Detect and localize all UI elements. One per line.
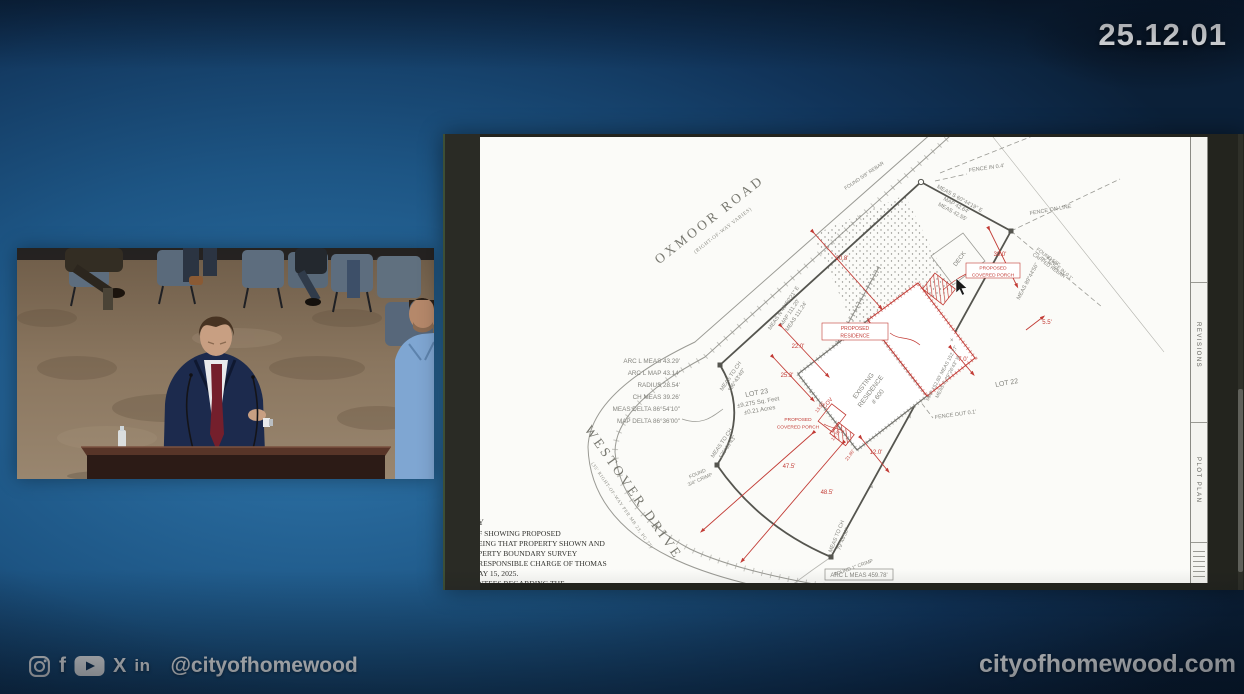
adjacent-lot-label: LOT 22 (995, 378, 1019, 389)
svg-text:PROPOSED: PROPOSED (784, 417, 812, 423)
svg-text:CH MEAS 39.26': CH MEAS 39.26' (633, 394, 680, 401)
svg-text:DECK: DECK (953, 251, 968, 268)
chord-label-2: MEAS TO CH 126°09'43" (710, 428, 740, 464)
svg-text:FENCE OUT 0.1': FENCE OUT 0.1' (934, 409, 976, 421)
svg-text:Y: Y (480, 518, 484, 527)
date-overlay: 25.12.01 (1098, 17, 1227, 53)
slide-left-margin (445, 134, 480, 590)
svg-text:22.0': 22.0' (792, 344, 805, 350)
svg-text:×: × (908, 415, 912, 421)
plot-plan-drawing: OXMOOR ROAD (RIGHT-OF-WAY VARIES) WESTOV… (480, 137, 1190, 583)
deck-label: DECK (953, 251, 968, 268)
svg-text:RADIUS 28.54': RADIUS 28.54' (637, 382, 680, 389)
svg-text:21.80': 21.80' (844, 449, 855, 462)
svg-text:NTEES REGARDING THE: NTEES REGARDING THE (480, 579, 565, 583)
revision-rows (1193, 547, 1205, 577)
svg-text:39.0': 39.0' (994, 252, 1007, 258)
svg-text:PROPOSED: PROPOSED (841, 326, 870, 332)
svg-text:RESIDENCE: RESIDENCE (840, 334, 870, 340)
scrollbar[interactable] (1238, 134, 1243, 590)
svg-text:12.0': 12.0' (870, 450, 883, 456)
plot-plan-label: PLOT PLAN (1195, 457, 1201, 503)
monument-label-rebar: FOUND 5/8" REBAR (843, 160, 885, 191)
title-block-divider (1191, 422, 1207, 423)
scrollbar-thumb[interactable] (1238, 389, 1243, 571)
lot-label: LOT 23 ±9,275 Sq. Feet ±0.21 Acres (735, 386, 782, 417)
youtube-icon[interactable] (74, 655, 105, 677)
title-block-divider (1191, 542, 1207, 543)
survey-sheet: OXMOOR ROAD (RIGHT-OF-WAY VARIES) WESTOV… (480, 137, 1190, 583)
svg-text:RESPONSIBLE CHARGE OF THOMAS: RESPONSIBLE CHARGE OF THOMAS (480, 559, 607, 568)
shared-screen-panel[interactable]: OXMOOR ROAD (RIGHT-OF-WAY VARIES) WESTOV… (443, 134, 1244, 590)
website-url: cityofhomewood.com (979, 650, 1236, 679)
svg-text:5.5': 5.5' (1042, 320, 1052, 326)
svg-text:PERTY BOUNDARY SURVEY: PERTY BOUNDARY SURVEY (480, 549, 578, 558)
x-icon[interactable]: X (113, 655, 126, 677)
svg-text:×: × (950, 338, 954, 344)
svg-text:×: × (870, 485, 874, 491)
revisions-label: REVISIONS (1195, 322, 1201, 368)
svg-text:FENCE ON LINE: FENCE ON LINE (1029, 204, 1072, 217)
monument-label-crimp34: FOUND 3/4" CRIMP (684, 466, 714, 488)
instagram-icon[interactable] (28, 655, 51, 678)
linkedin-icon[interactable]: in (134, 655, 150, 677)
svg-text:25.3': 25.3' (781, 373, 794, 379)
tie (210, 364, 224, 451)
water-bottle (118, 430, 126, 448)
svg-text:EING THAT PROPERTY SHOWN AND: EING THAT PROPERTY SHOWN AND (480, 539, 605, 548)
svg-text:AY 15, 2025.: AY 15, 2025. (480, 569, 518, 578)
svg-text:OXMOOR ROAD: OXMOOR ROAD (652, 172, 767, 267)
road-label-oxmoor: OXMOOR ROAD (RIGHT-OF-WAY VARIES) (652, 172, 775, 277)
chord-label-1: MEAS TO CH 136°43'49" (719, 361, 749, 397)
svg-text:47.5': 47.5' (783, 464, 796, 470)
mouse-cursor (956, 278, 967, 295)
svg-text:ARC L MAP 43.14': ARC L MAP 43.14' (628, 370, 680, 377)
svg-text:LOT 22: LOT 22 (995, 378, 1019, 389)
certification-text: Y F SHOWING PROPOSED EING THAT PROPERTY … (480, 518, 607, 583)
facebook-icon[interactable]: f (59, 655, 66, 677)
social-handle: @cityofhomewood (170, 654, 357, 678)
social-bar: f X in @cityofhomewood (28, 654, 358, 678)
svg-text:MEAS DELTA 86°54'10": MEAS DELTA 86°54'10" (613, 405, 680, 413)
svg-text:LOT 23: LOT 23 (745, 388, 769, 399)
svg-text:COVERED PORCH: COVERED PORCH (972, 273, 1015, 279)
meeting-room-scene (17, 248, 434, 479)
sheet-title-block: REVISIONS PLOT PLAN (1190, 137, 1208, 583)
svg-text:PROPOSED: PROPOSED (979, 266, 1007, 272)
svg-text:ARC L MEAS 43.29': ARC L MEAS 43.29' (623, 358, 680, 365)
svg-text:7.0': 7.0' (958, 357, 968, 363)
svg-text:MAP DELTA 86°36'00": MAP DELTA 86°36'00" (617, 417, 680, 425)
svg-text:FENCE IN 0.4': FENCE IN 0.4' (968, 163, 1004, 174)
svg-text:F SHOWING PROPOSED: F SHOWING PROPOSED (480, 529, 561, 538)
bearing-label-nw: MEAS N 46°50'21" E MAP 111.20' MEAS 111.… (767, 285, 813, 340)
svg-text:48.5': 48.5' (821, 490, 834, 496)
video-panel[interactable] (17, 248, 434, 479)
title-block-divider (1191, 282, 1207, 283)
svg-text:ARC L MEAS 459.78': ARC L MEAS 459.78' (830, 573, 887, 579)
svg-text:FOUND 5/8" REBAR: FOUND 5/8" REBAR (843, 160, 885, 191)
svg-text:COVERED PORCH: COVERED PORCH (777, 425, 820, 431)
watch (269, 419, 273, 426)
svg-text:20.8': 20.8' (836, 256, 849, 262)
